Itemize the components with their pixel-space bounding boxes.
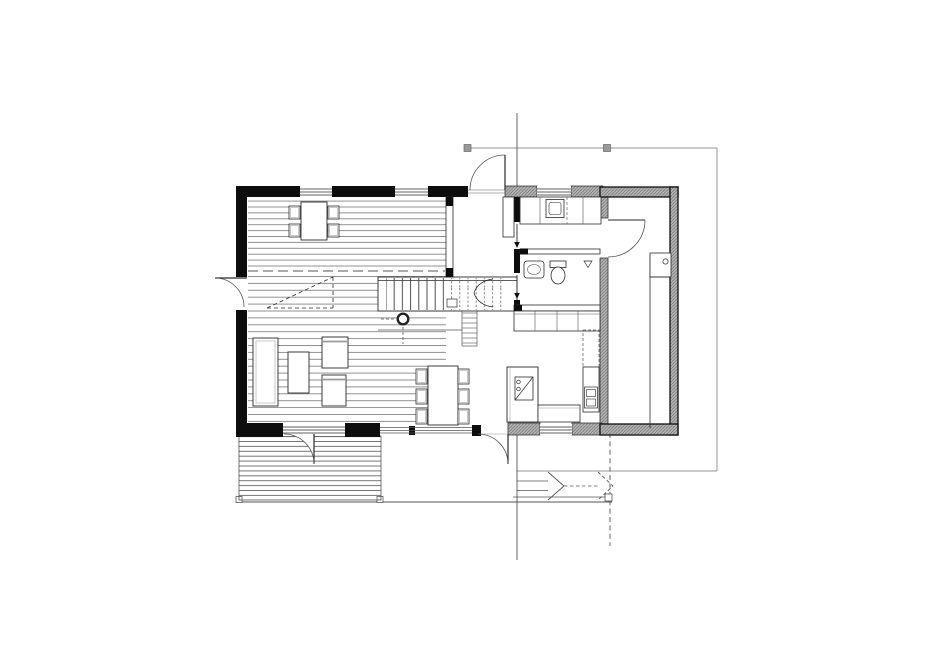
stair-treads (386, 278, 444, 310)
toilet-tank (550, 261, 566, 268)
stair-landing-detail (447, 299, 457, 307)
kitchen-counter-south (538, 405, 580, 422)
utility-counter (520, 197, 601, 224)
wall-south-seg (236, 423, 283, 437)
staircase (378, 277, 517, 311)
stair-treads-above-cut (450, 278, 507, 310)
front-room-floor (248, 197, 446, 268)
coffee-table (288, 352, 309, 393)
bath-south-wall (514, 305, 600, 311)
dining-set (416, 366, 469, 425)
west-door-opening (236, 277, 247, 310)
workbench-cabinet (650, 253, 671, 277)
wall-south-seg (345, 423, 380, 437)
wall-north (236, 186, 468, 197)
pocket-wall (514, 197, 520, 222)
structural-column (398, 314, 409, 325)
floor-plan-canvas (0, 0, 940, 664)
floor-plan-page (0, 0, 940, 664)
pocket-wall (514, 249, 520, 273)
front-room-east-wall (446, 197, 453, 277)
shelf-unit (462, 308, 477, 346)
utility-bath-wall (520, 249, 600, 254)
dining-table (428, 366, 458, 425)
toilet-bowl (551, 267, 565, 284)
canopy-post (604, 145, 611, 152)
wardrobe-row (514, 311, 600, 331)
terrace-post (605, 494, 612, 501)
sofa (253, 338, 278, 406)
wash-basin (524, 261, 544, 278)
table (301, 202, 327, 240)
wall-west (236, 186, 247, 437)
canopy-post (464, 145, 471, 152)
hall-closet (503, 197, 514, 237)
